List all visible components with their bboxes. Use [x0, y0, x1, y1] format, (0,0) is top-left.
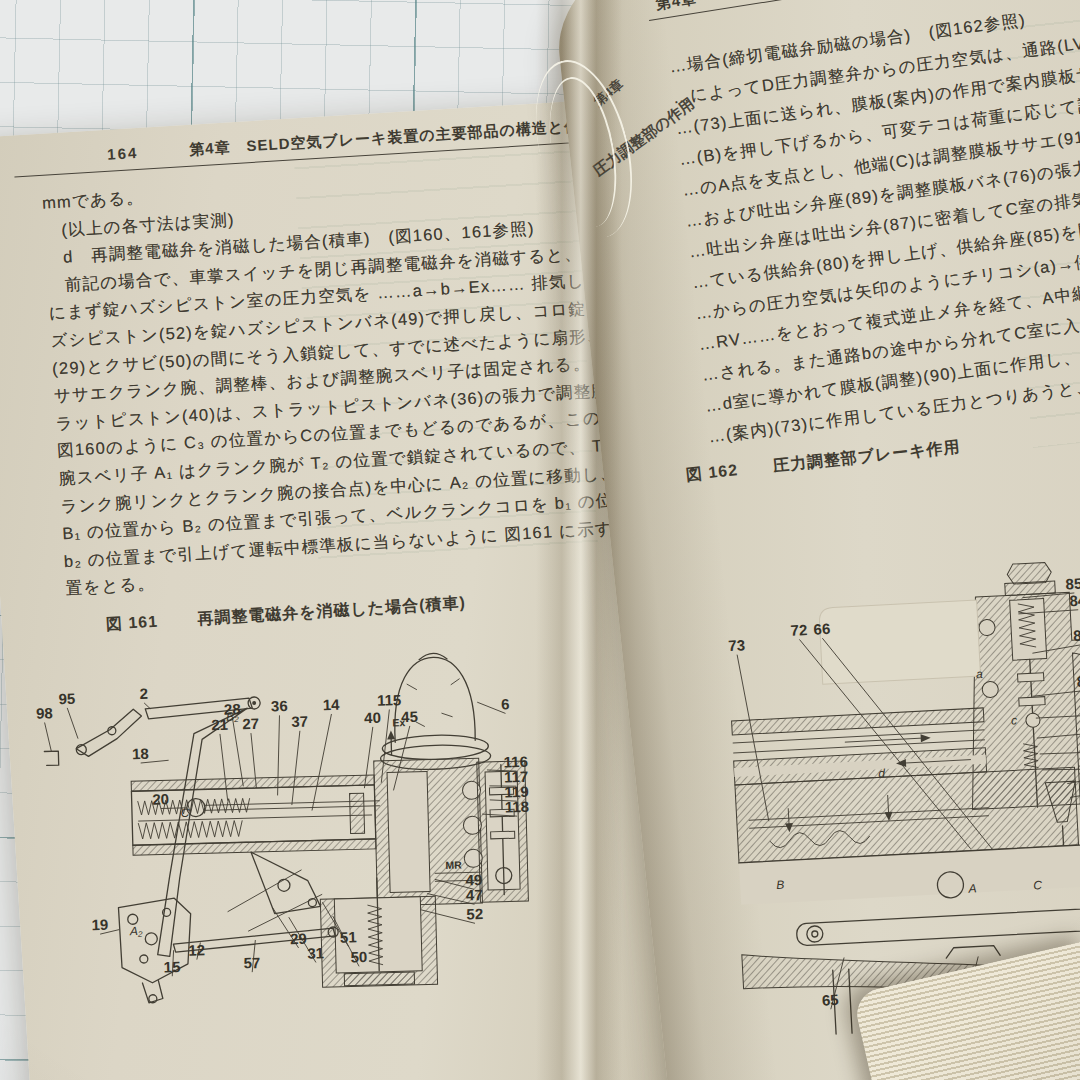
left-body-line: b₂ の位置まで引上げて運転中標準板に当らないように 図161 に示すような位 [63, 519, 544, 576]
left-body-line: にまず錠ハズシピストン室の圧力空気を ……a→b→Ex…… 排気し、錠ハ [48, 271, 529, 328]
left-body-line: ラットピストン(40)は、ストラットピストンバネ(36)の張力で調整腕を伴なって [55, 381, 536, 438]
figure-callout-label: C [180, 806, 189, 820]
figure-callout-label: 117 [504, 768, 529, 786]
figure-161-callouts: 9598218202128273637144011545Ex6116117119… [35, 675, 533, 980]
callout-leader-line [489, 785, 516, 787]
left-body-line: d 再調整電磁弁を消磁した場合(積車) (図160、161参照) [45, 216, 526, 273]
callout-leader-line [289, 916, 316, 963]
figure-callout-label: 2 [139, 685, 148, 702]
left-body-text: mmである。 (以上の各寸法は実測) d 再調整電磁弁を消磁した場合(積車) (… [41, 161, 545, 603]
figure-callout-label: 27 [242, 715, 259, 732]
figure-callout-label: 31 [307, 944, 324, 961]
callout-leader-line [309, 714, 334, 811]
left-body-line: B₁ の位置から B₂ の位置まで引張って、ベルクランクコロを b₁ の位置から [62, 491, 543, 548]
figure-callout-label: 19 [91, 916, 108, 933]
left-body-line: ササエクランク腕、調整棒、および調整腕スベリ子は固定される。しかしスト [53, 353, 534, 410]
callout-leader-line [290, 731, 302, 805]
callout-leader-line [141, 760, 169, 763]
figure-callout-label: 57 [243, 954, 260, 971]
figure-callout-label: 14 [323, 696, 341, 713]
callout-leader-line [220, 734, 228, 801]
left-body-line: ズシピストン(52)を錠ハズシピストンバネ(49)で押し戻し、コロ錠(51)を扇… [50, 298, 531, 355]
photo-scene: 164 第4章 SELD空気ブレーキ装置の主要部品の構造と作用 mmである。 (… [0, 0, 1080, 1080]
figure-162-caption: 圧力調整部ブレーキ作用 [772, 438, 961, 475]
callout-leader-line [251, 940, 256, 972]
callout-leader-line [45, 722, 52, 751]
figure-callout-label: a [976, 667, 984, 681]
callout-leader-line [275, 715, 281, 795]
figure-callout-label: 36 [271, 697, 288, 714]
left-body-line: 前記の場合で、車掌スイッチを閉じ再調整電磁弁を消磁すると、前記のよう [46, 243, 527, 300]
callout-leader-line [421, 908, 475, 924]
figure-callout-label: 85 [1065, 575, 1080, 593]
left-channels [726, 600, 987, 785]
figure-callout-label: 80 [1073, 626, 1080, 644]
figure-callout-label: 45 [401, 708, 418, 725]
figure-callout-label: 98 [36, 704, 53, 721]
figure-callout-label: 50 [350, 948, 367, 965]
callout-leader-line [196, 942, 200, 959]
figure-callout-label: MR [445, 859, 462, 871]
left-body-line: (29)とクサビ(50)の間にそう入鎖錠して、すでに述べたように扇形、スリーブ [51, 326, 532, 383]
left-body-line: 図160のように C₃ の位置からCの位置までもどるのであるが、この場合調整 [56, 408, 537, 465]
figure-callout-label: 40 [364, 709, 381, 726]
left-page-number: 164 [107, 144, 139, 163]
valve-block [373, 727, 529, 906]
left-body-line: 腕スベリ子 A₁ はクランク腕が T₂ の位置で鎖錠されているので、 T₂点(ク [58, 436, 539, 493]
callout-leader-line [477, 701, 505, 714]
figure-callout-label: 73 [728, 636, 746, 654]
figure-callout-label: 84 [1069, 591, 1080, 609]
figure-callout-label: 119 [504, 783, 529, 801]
top-bolt [1004, 562, 1056, 596]
figure-callout-label: 49 [465, 871, 482, 888]
figure-callout-label: B₂ [226, 709, 239, 723]
figure-callout-label: 65 [822, 991, 840, 1009]
callout-leader-line [251, 733, 256, 788]
figure-callout-label: 20 [152, 790, 169, 807]
figure-callout-label: 6 [501, 695, 510, 712]
figure-callout-label: 95 [58, 690, 75, 707]
callout-leader-line [490, 799, 517, 802]
callout-leader-line [161, 808, 187, 809]
figure-callout-label: 47 [466, 886, 483, 903]
figure-callout-label: 72 [790, 621, 808, 639]
figure-callout-label: A₂ [129, 924, 143, 938]
callout-leader-line [100, 930, 119, 934]
figure-callout-label: 118 [505, 798, 530, 816]
figure-callout-label: 21 [211, 716, 228, 733]
callout-leader-line [363, 727, 375, 788]
figure-callout-label: 15 [163, 958, 180, 975]
figure-callout-label: A [967, 881, 977, 895]
callout-leader-line [322, 902, 348, 948]
figure-callout-label: 115 [377, 691, 402, 709]
callout-leader-line [273, 907, 299, 949]
reservoir-dome [378, 652, 491, 771]
figure-callout-label: C [1033, 878, 1043, 892]
figure-callout-label: c [1011, 713, 1018, 727]
callout-leader-line [379, 709, 391, 782]
lever-linkage [43, 694, 385, 1006]
callout-leader-line [233, 718, 244, 786]
figure-callout-label: 51 [340, 928, 357, 945]
figure-callout-label: 37 [291, 713, 308, 730]
figure-callout-label: d [878, 766, 886, 780]
callout-leader-line [435, 878, 474, 890]
callout-leader-line [392, 726, 412, 790]
figure-callout-label: 28 [224, 700, 241, 717]
left-body-line: mmである。 [41, 161, 522, 218]
figure-callout-label: 29 [290, 930, 307, 947]
left-body-line: ランク腕リンクとクランク腕の接合点)を中心に A₂ の位置に移動し、押棒を [60, 464, 541, 521]
callout-leader-line [487, 769, 516, 772]
callout-leader-line [144, 703, 150, 709]
right-body-text: …場合(締切電磁弁励磁の場合) (図162参照)…によってD圧力調整弁からの圧力… [666, 0, 1080, 437]
figure-callout-label: 18 [132, 745, 149, 762]
left-header-rule [14, 140, 613, 178]
figure-callout-label: 116 [503, 753, 528, 771]
figure-callout-label: 52 [466, 905, 483, 922]
lower-cylinder [320, 876, 438, 987]
left-body-line: 置をとる。 [65, 546, 546, 603]
figure-callout-label: 66 [813, 620, 831, 638]
figure-callout-label: 12 [188, 941, 205, 958]
left-body-line: (以上の各寸法は実測) [43, 188, 524, 245]
callout-leader-line [482, 813, 517, 817]
figure-161-number: 図 161 [105, 612, 158, 632]
callout-leader-line [333, 915, 359, 967]
figure-callout-label: B [776, 878, 785, 892]
cylinder-body [131, 775, 376, 855]
figure-162-number: 図 162 [685, 461, 739, 483]
figure-callout-label: 87 [1076, 672, 1080, 690]
callout-leader-line [427, 892, 474, 905]
callout-leader-line [172, 950, 175, 976]
callout-leader-line [67, 708, 78, 739]
figure-161-caption: 再調整電磁弁を消磁した場合(積車) [197, 594, 466, 627]
figure-161-diagram: 9598218202128273637144011545Ex6116117119… [16, 638, 550, 1002]
figure-callout-label: Ex [392, 716, 405, 728]
